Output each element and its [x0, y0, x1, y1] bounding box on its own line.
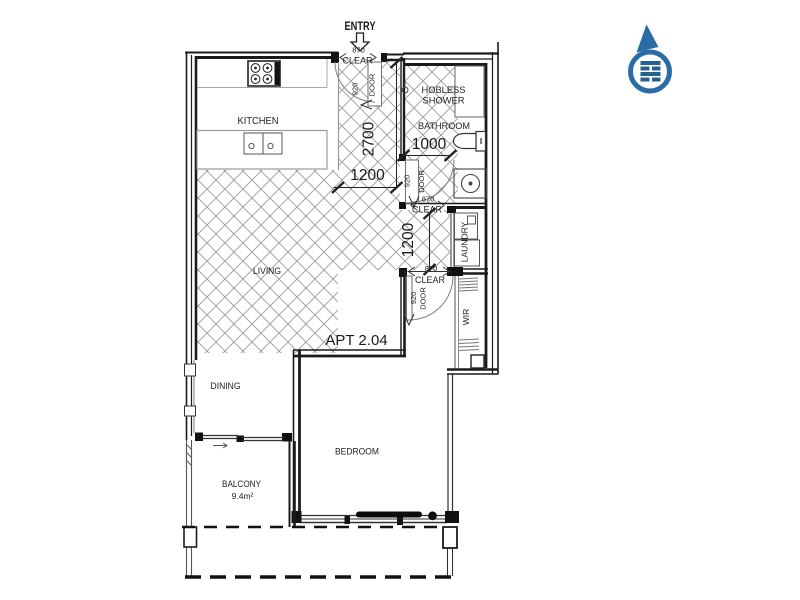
- svg-text:1000: 1000: [412, 136, 447, 153]
- svg-text:BALCONY: BALCONY: [222, 479, 262, 490]
- svg-text:870: 870: [422, 195, 435, 204]
- svg-text:ENTRY: ENTRY: [345, 21, 376, 33]
- svg-text:SHOWER: SHOWER: [423, 96, 466, 106]
- svg-text:DINING: DINING: [211, 381, 241, 392]
- svg-text:9.4m²: 9.4m²: [232, 491, 254, 501]
- svg-text:HOBLESS: HOBLESS: [422, 85, 466, 95]
- svg-text:BEDROOM: BEDROOM: [335, 447, 379, 458]
- svg-text:CLEAR: CLEAR: [412, 205, 443, 215]
- svg-text:APT 2.04: APT 2.04: [325, 332, 387, 349]
- svg-text:LIVING: LIVING: [253, 266, 281, 276]
- svg-text:1200: 1200: [400, 222, 417, 257]
- svg-text:CLEAR: CLEAR: [342, 56, 373, 66]
- svg-text:KITCHEN: KITCHEN: [238, 116, 279, 127]
- svg-text:BATHROOM: BATHROOM: [418, 121, 470, 132]
- svg-text:1200: 1200: [350, 167, 385, 184]
- svg-text:2700: 2700: [361, 121, 378, 156]
- svg-text:WIR: WIR: [461, 309, 471, 326]
- svg-text:920: 920: [403, 175, 412, 188]
- svg-text:DOOR: DOOR: [419, 287, 428, 310]
- svg-text:870: 870: [425, 264, 438, 273]
- svg-text:CLEAR: CLEAR: [415, 275, 446, 285]
- svg-text:LAUNDRY: LAUNDRY: [460, 221, 470, 262]
- svg-text:920: 920: [409, 292, 418, 305]
- svg-text:920: 920: [351, 83, 360, 96]
- svg-text:DOOR: DOOR: [417, 170, 426, 193]
- svg-text:870: 870: [352, 46, 365, 55]
- svg-text:DOOR: DOOR: [368, 73, 377, 96]
